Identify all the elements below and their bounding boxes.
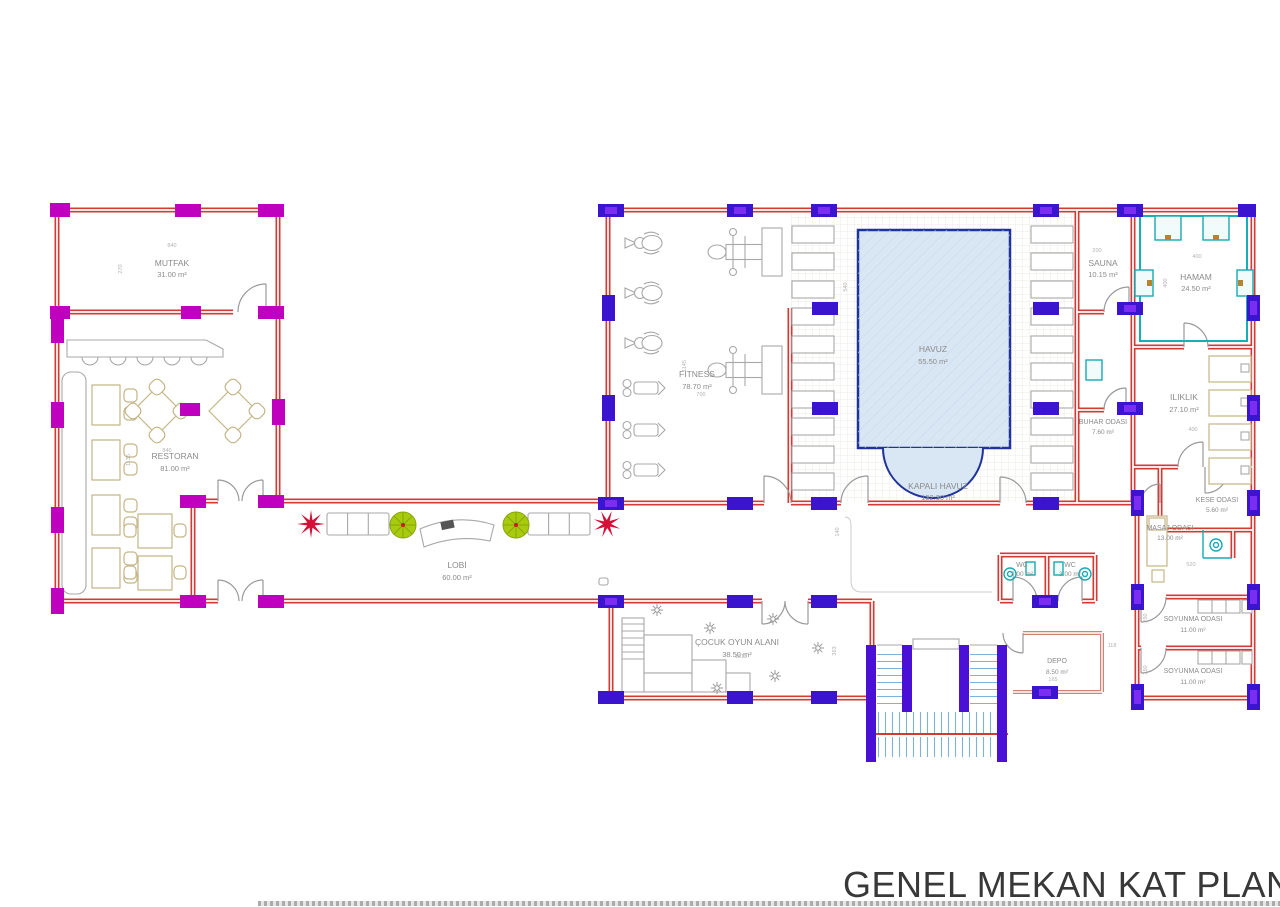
- dim-label: 200: [1092, 248, 1101, 254]
- lobby-phone-icon: [599, 578, 608, 585]
- floor-plan-svg: MUTFAK 31.00 m² RESTORAN 81.00 m² LOBİ 6…: [0, 0, 1280, 907]
- room-label-depo: DEPO: [1047, 658, 1067, 665]
- cropped-drawing-edge: [258, 901, 1280, 906]
- room-label-wc-2: WC: [1064, 562, 1076, 569]
- room-label-masaj: MASAJ ODASI: [1146, 525, 1193, 532]
- dim-label: 140: [835, 527, 841, 536]
- room-area-wc-1: 3.00 m²: [1011, 571, 1034, 578]
- dim-label: 363: [832, 646, 838, 655]
- iliklik-loungers: [1209, 356, 1251, 484]
- room-label-mutfak: MUTFAK: [155, 258, 190, 268]
- room-area-hamam: 24.50 m²: [1181, 284, 1211, 293]
- room-area-sauna: 10.15 m²: [1088, 270, 1118, 279]
- room-area-mutfak: 31.00 m²: [157, 270, 187, 279]
- room-label-soyunma-1: SOYUNMA ODASI: [1164, 616, 1223, 623]
- dim-label: 250: [1143, 613, 1149, 622]
- restaurant-banquette: [62, 372, 86, 594]
- dim-label: 1135: [126, 454, 132, 466]
- room-area-masaj: 13.00 m²: [1157, 535, 1183, 542]
- room-label-sauna: SAUNA: [1088, 258, 1118, 268]
- room-area-lobi: 60.00 m²: [442, 573, 472, 582]
- room-area-restoran: 81.00 m²: [160, 464, 190, 473]
- room-area-fitness: 78.70 m²: [682, 382, 712, 391]
- room-label-cocuk-oyun: ÇOCUK OYUN ALANI: [695, 637, 779, 647]
- dim-label: 165: [1048, 677, 1057, 683]
- room-label-lobi: LOBİ: [447, 560, 466, 570]
- room-label-kapali-havuz: KAPALI HAVUZ: [908, 481, 968, 491]
- dim-label: 700: [696, 392, 705, 398]
- reception-desk: [420, 520, 494, 547]
- stairs: [866, 639, 1008, 762]
- dim-label: 400: [1192, 254, 1201, 260]
- room-label-iliklik: ILIKLIK: [1170, 392, 1198, 402]
- room-label-havuz: HAVUZ: [919, 344, 947, 354]
- floor-plan-canvas: MUTFAK 31.00 m² RESTORAN 81.00 m² LOBİ 6…: [0, 0, 1280, 907]
- room-area-soyunma-1: 11.00 m²: [1180, 627, 1206, 634]
- lobby-sofa-right: [528, 513, 590, 535]
- room-label-restoran: RESTORAN: [151, 451, 198, 461]
- room-label-wc-1: WC: [1016, 562, 1028, 569]
- room-area-soyunma-2: 11.00 m²: [1180, 679, 1206, 686]
- dim-label: 1145: [682, 360, 688, 372]
- lobby-plant-icon-2: [503, 512, 529, 538]
- lockers: [1198, 600, 1252, 664]
- room-label-kese: KESE ODASI: [1196, 497, 1238, 504]
- room-area-buhar: 7.60 m²: [1092, 429, 1115, 436]
- room-label-soyunma-2: SOYUNMA ODASI: [1164, 668, 1223, 675]
- dim-label: 400: [1163, 278, 1169, 287]
- gym-equipment: [623, 228, 782, 479]
- dim-label: 250: [1143, 665, 1149, 674]
- room-area-iliklik: 27.10 m²: [1169, 405, 1199, 414]
- room-label-hamam: HAMAM: [1180, 272, 1212, 282]
- room-label-buhar: BUHAR ODASI: [1079, 419, 1127, 426]
- drawing-title: GENEL MEKAN KAT PLANI: [843, 864, 1280, 906]
- dim-label: 118: [1108, 643, 1117, 649]
- dim-label: 400: [1188, 427, 1197, 433]
- dim-label: 270: [118, 264, 124, 273]
- room-area-depo: 8.50 m²: [1046, 669, 1069, 676]
- room-area-kapali-havuz: 132.30 m²: [921, 493, 955, 502]
- dim-label: 540: [843, 282, 849, 291]
- lobby-sofa-left: [327, 513, 389, 535]
- shower-unit: [1086, 360, 1102, 380]
- room-area-havuz: 55.50 m²: [918, 357, 948, 366]
- dim-label: 840: [167, 243, 176, 249]
- room-area-kese: 5.60 m²: [1206, 507, 1229, 514]
- restaurant-tables: [92, 377, 267, 590]
- room-area-wc-2: 3.00 m²: [1059, 571, 1082, 578]
- dim-label: 840: [162, 448, 171, 454]
- dim-label: 1613: [735, 654, 747, 660]
- lobby-plant-icon: [390, 512, 416, 538]
- dim-label: 520: [1186, 562, 1195, 568]
- bar-counter: [67, 340, 223, 365]
